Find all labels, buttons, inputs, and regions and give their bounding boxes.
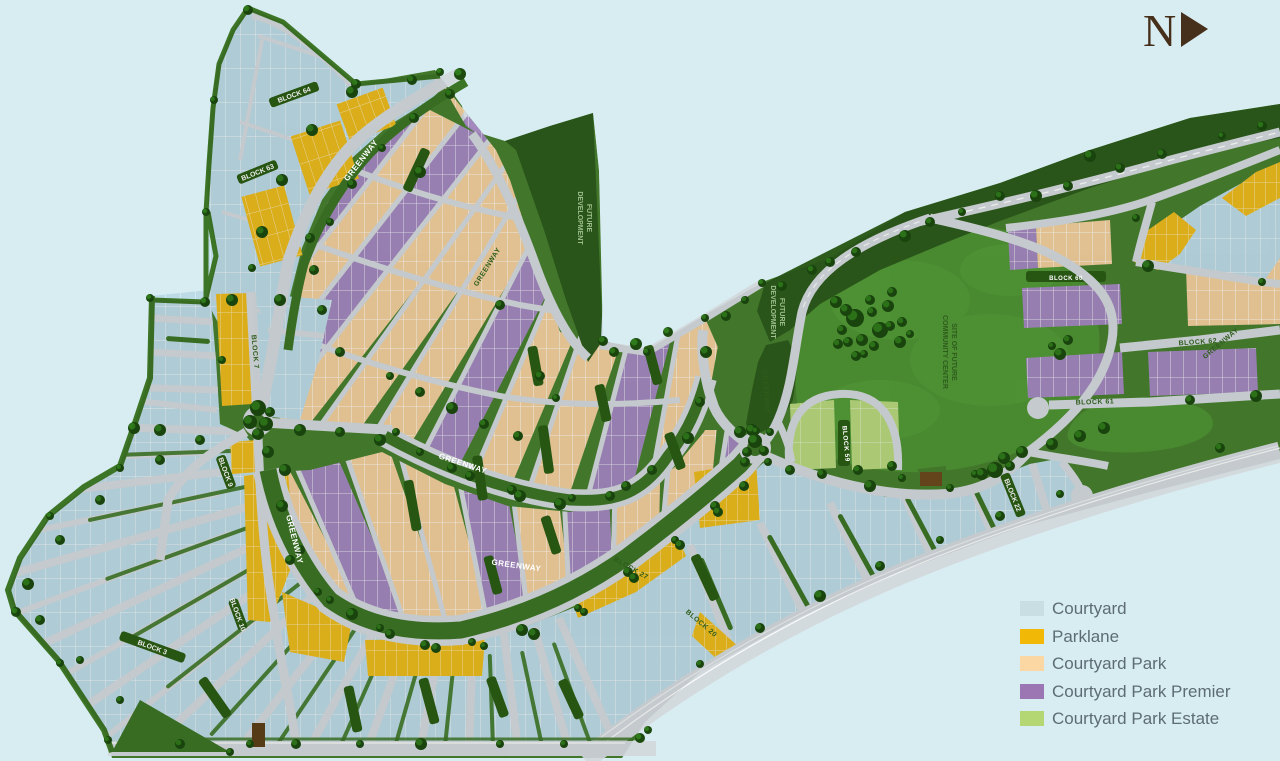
svg-text:N: N	[1143, 5, 1176, 56]
svg-text:Courtyard Park: Courtyard Park	[1052, 654, 1167, 673]
svg-text:Courtyard Park Estate: Courtyard Park Estate	[1052, 709, 1219, 728]
svg-text:Courtyard: Courtyard	[1052, 599, 1127, 618]
svg-text:BLOCK 60: BLOCK 60	[1049, 276, 1083, 282]
svg-text:BLOCK 61: BLOCK 61	[1076, 398, 1115, 406]
svg-text:Courtyard Park Premier: Courtyard Park Premier	[1052, 682, 1231, 701]
svg-text:Parklane: Parklane	[1052, 627, 1119, 646]
